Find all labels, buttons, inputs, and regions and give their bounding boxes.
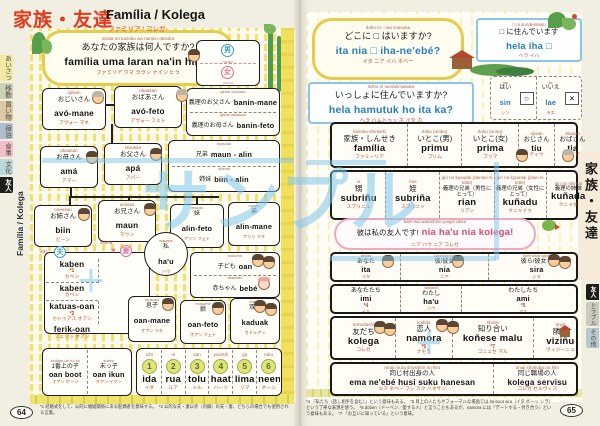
sidebar-tab-friends-right: 友人 (586, 284, 599, 300)
grass-strip-left (30, 395, 294, 404)
vocab-yes: haiはいsinシン (492, 81, 519, 116)
sidebar-tab-meals: 食事 (0, 141, 13, 157)
wife-icon: 妻 (120, 245, 132, 257)
vocab-female: 女onnafetoフェト (198, 64, 258, 85)
vocab-sisters: shimai姉妹biin - alinビーン アリン (170, 167, 278, 191)
grandmother-face-icon (176, 90, 188, 102)
table-row-2: oi甥subriñuスブリニュ mei姪subriñaスブリニャ giri no… (330, 170, 578, 220)
vocab-neighbor: rinjin隣人viziñuヴィジーニュ (534, 318, 587, 358)
siblings-box: kyoudai兄弟maun - alinマウン アリン shimai姉妹biin… (168, 140, 280, 192)
numbers-box: ichi1idaイダ ni2ruaルア san3toluトル yon/shi4h… (136, 348, 282, 396)
sidebar-tab-others: その他 (586, 328, 599, 348)
sidebar-tab-culture: 文化 (0, 159, 13, 175)
table-row-6: onaji mura shusshin no hito同じ村出身の人ema ne… (330, 362, 578, 396)
question-live-together-box: issho ni sundeimasukaいっしょに住んでいますか?hela h… (308, 82, 474, 124)
gender-box: 男otokomaneマネ 女onnafetoフェト (196, 40, 260, 86)
brother-face-icon (144, 204, 156, 216)
friends-face-icon (384, 324, 396, 336)
vocab-cousin-male: itoko (otoko)いとこ(男)primuプリム (408, 124, 462, 166)
table-row-4: anatatachiあなたたちimi*4イミ watashiわたしha'uハウ … (330, 284, 578, 314)
leaf-icon (264, 24, 276, 34)
child-face-icon (263, 257, 275, 269)
page-number-right: 65 (560, 404, 583, 417)
twin-face-icon (265, 304, 277, 316)
vocab-number-4: yon/shi4haatハーツ (209, 350, 233, 394)
vocab-me: watashi私ha'uハウ (144, 232, 188, 276)
sidebar-tab-friends-active: 友人 (0, 177, 13, 193)
daughter-face-icon (212, 303, 224, 315)
vocab-father-in-law: girino otousan義理のお父さんbanin-maneバニン マネ (188, 90, 278, 112)
vocab-no: iieいいえlaeラエ (538, 81, 565, 116)
vocab-eldest-child: ichiban ue no ko1番上の子oan bootオアン ボーツ (44, 350, 88, 394)
neighbor-house-icon (560, 330, 570, 337)
cross-sign-icon: × (565, 92, 579, 105)
vocab-family: kazoku-shinseki家族・しんせきfamíliaファミーリア (332, 124, 408, 166)
yes-cell: haiはいsinシン ○ (491, 77, 537, 119)
table-row-1: kazoku-shinseki家族・しんせきfamíliaファミーリア itok… (330, 122, 578, 168)
vocab-number-1: ichi1idaイダ (138, 350, 162, 394)
mother-face-icon (86, 152, 98, 164)
sister-face-icon (78, 209, 90, 221)
sidebar-tab-trouble: トラブル (586, 302, 599, 326)
vocab-number-2: ni2ruaルア (162, 350, 186, 394)
birth-order-box: ichiban ue no ko1番上の子oan bootオアン ボーツ sue… (42, 348, 132, 396)
leaf-icon (562, 18, 576, 30)
vocab-youngest-child: sueko末っ子oan ikunオアン イクン (88, 350, 131, 394)
son-face-icon (162, 299, 174, 311)
husband-label: otto (40, 249, 48, 254)
vocab-common-law-wife: ferik-oanフェリッ オアン (46, 324, 98, 341)
friend-bubble: kare wa watashino yuujin desu彼は私の友人です!ni… (334, 218, 536, 250)
vocab-number-5: go5limaリマ (233, 350, 257, 394)
page-gutter (293, 0, 309, 426)
sidebar-tab-greetings: あいさつ (0, 55, 13, 81)
vocab-brother-in-law-for-man: giri no kyoudai (dansei ni totte)義理の兄弟（男… (440, 172, 494, 218)
vocab-common-law-husband: katuas-oan*2カトゥアス オアン (46, 301, 99, 324)
wife-label: tsuma (100, 240, 112, 245)
vocab-male: 男otokomaneマネ (198, 42, 258, 63)
vocab-he-is-my-friend: kare wa watashino yuujin desu彼は私の友人です!ni… (357, 219, 514, 248)
vocab-younger-brother: otouto弟alin-maneアリン マネ (228, 202, 280, 246)
vocab-you-plural: anatatachiあなたたちimi*4イミ (332, 286, 401, 312)
vocab-mother-in-law: girino okaasan義理のお母さんbanin-fetoバニン フェト (188, 113, 278, 135)
vocab-number-6: roku6neenネーン (257, 350, 280, 394)
vocab-niece: mei姪subriñaスブリニャ (386, 172, 440, 218)
vocab-nephew: oi甥subriñuスブリニュ (332, 172, 386, 218)
father-face-icon (150, 149, 162, 161)
circle-sign-icon: ○ (520, 92, 534, 105)
baby-face-icon (258, 278, 270, 290)
house-icon (452, 58, 472, 69)
sidebar-tab-shopping: 買い物 (0, 101, 13, 121)
he-she-face-icon (452, 256, 464, 268)
vocab-number-3: san3toluトル (186, 350, 210, 394)
vocab-cousin-female: itoko (onna)いとこ(女)primaプリマ (462, 124, 519, 166)
they-face-icon (559, 257, 571, 269)
you-face-icon (382, 256, 394, 268)
question-where-bubble: doko ni □ wa imasukaどこに □ はいますか?ita nia … (312, 18, 464, 80)
footnote-left: *1 結婚式をして、公的に婚姻関係にある配偶者を意味する。 *2 公的な夫・妻以… (40, 404, 292, 416)
flower-icon (572, 14, 577, 19)
vocab-he-she: kare/kanojo彼/彼女niaニア (401, 254, 489, 280)
page-title-kana: ファミリア / コレガ (108, 23, 165, 33)
vocab-acquaintance: shiriai知り合いkoñese malu*7コニェセ マル (453, 318, 534, 358)
vocab-we: watashitachiわたしたちami*5アミ (462, 286, 584, 312)
uncle-face-icon (516, 150, 528, 162)
no-cell: iieいいえlaeラエ × (537, 77, 582, 119)
plant-icon (42, 40, 52, 54)
inlaw-box: girino otousan義理のお父さんbanin-maneバニン マネ gi… (186, 88, 280, 136)
grandfather-face-icon (92, 92, 104, 104)
right-spine-title: 家族・友達 (581, 162, 600, 242)
vocab-i: watashiわたしha'uハウ (401, 286, 463, 312)
heart-icon: ♥ (111, 246, 116, 255)
bamboo-icon (277, 36, 281, 92)
page-number-left: 64 (10, 406, 33, 419)
sidebar-tab-transport: 移動 (0, 83, 13, 99)
vocab-brothers: kyoudai兄弟maun - alinマウン アリン (170, 142, 278, 166)
vocab-spouse-1: kaben*1カベン (46, 259, 99, 283)
vocab-person-from-same-village: onaji mura shusshin no hito同じ村出身の人ema ne… (332, 364, 494, 394)
page-title: 家族・友達 (13, 5, 113, 32)
vocab-coworker: onaji shokuba no hito同じ職場の人kolega servis… (494, 364, 581, 394)
hill-icon (496, 67, 534, 76)
girl-face-icon (188, 50, 200, 62)
footnote-right: *4 『私たち（話し相手を含む）』という意味もある。 *5 目上の人たちやフォー… (306, 399, 552, 416)
yes-no-box: haiはいsinシン ○ iieいいえlaeラエ × (490, 76, 582, 120)
sidebar-tab-lodging: 宿泊 (0, 123, 13, 139)
vocab-brother-in-law-for-woman: giri no kyoudai (josei ni totte)義理の兄弟（女性… (495, 172, 547, 218)
aunt-face-icon (562, 150, 574, 162)
spine-label: Família / Kolega (15, 160, 25, 256)
page-title-latin: Família / Kolega (106, 7, 205, 22)
vocab-grandmother: obaasanおばあさんavó-fetoアヴォー フェト (114, 86, 182, 128)
vocab-spouse-2: kabenカベン (46, 283, 98, 301)
lovers-face-icon (447, 322, 459, 334)
husband-icon: 夫 (54, 246, 66, 258)
